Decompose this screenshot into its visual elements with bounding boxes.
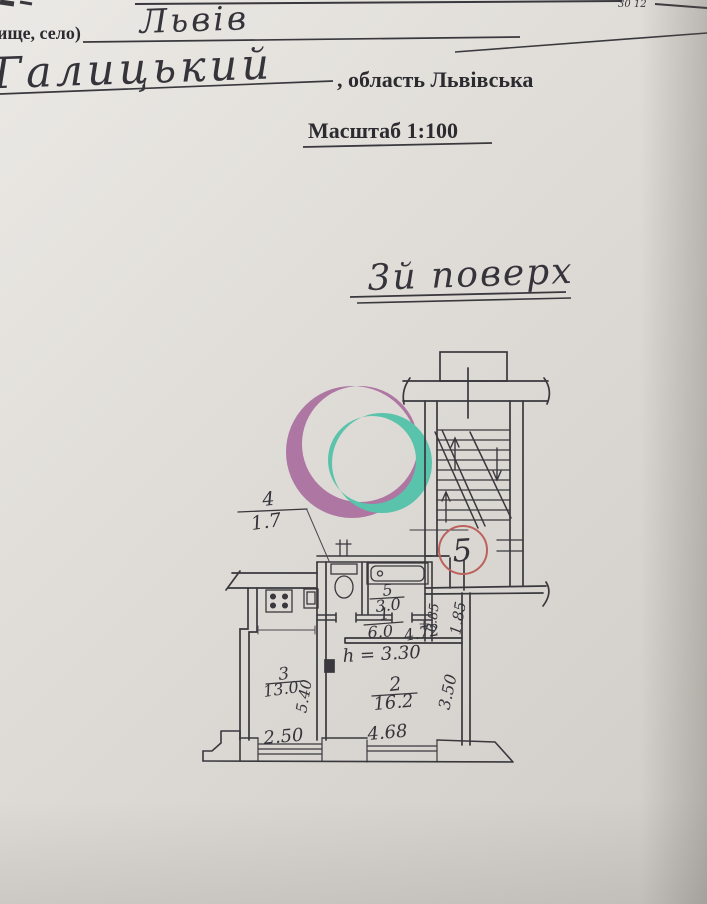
bottom-wall-outline [203, 738, 513, 762]
door-jamb-block [325, 660, 334, 672]
top-wall-band [403, 381, 548, 401]
bathtub-symbol [367, 563, 428, 584]
stove-symbol [266, 590, 292, 612]
scale-underline [303, 143, 492, 147]
bottom-wall-left-end [203, 731, 240, 761]
document-scan-canvas: 30 12 ище, село) Львів Галицький , облас… [0, 0, 707, 904]
apartment-number: 5 [451, 532, 473, 569]
dim-entry-b: 1.85 [446, 600, 470, 636]
floor-title-block: 3й поверх [350, 251, 574, 303]
left-walls [226, 562, 334, 740]
dimension-labels: 2.50 5.40 4.68 3.50 4.72 0.85 1.85 [262, 600, 470, 749]
page-bottom-shadow [0, 800, 707, 904]
top-wall-left-cut [403, 378, 410, 404]
entry-wall-band [425, 586, 546, 594]
top-left-mark [0, 2, 14, 4]
form-header: 30 12 ище, село) Львів Галицький , облас… [0, 0, 707, 147]
apartment-left-wall [240, 588, 257, 740]
top-left-dash [20, 2, 32, 4]
ceiling-height-note: h = 3.30 [342, 642, 421, 667]
scale-label: Масштаб 1:100 [308, 118, 458, 143]
dim-room3-width: 2.50 [262, 725, 305, 750]
sink-symbol [304, 589, 318, 608]
apartment-number-badge: 5 [439, 526, 487, 574]
district-handwritten-value: Галицький [0, 39, 274, 99]
dimension-lines [258, 510, 429, 634]
room3-dim-line [258, 626, 315, 634]
settlement-label: ище, село) [0, 23, 81, 44]
room4-leader-line [307, 510, 329, 561]
stairwell-right-wall [510, 401, 523, 586]
logo-teal-crescent [328, 413, 432, 513]
bath-block-top-wall [317, 556, 432, 562]
watermark-logo [286, 386, 432, 518]
dim-room2-width: 4.68 [366, 721, 409, 746]
oblast-label: , область Львівська [337, 67, 533, 92]
page-edge-shadow [640, 0, 707, 904]
vent-duct-marks [336, 540, 351, 556]
room4-number: 4 [260, 488, 275, 511]
kitchen-top-wall [226, 571, 317, 590]
settlement-handwritten-value: Львів [137, 0, 250, 41]
floor-title-underline-2 [357, 298, 571, 303]
toilet-symbol [331, 564, 357, 598]
top-wall-right-cut [544, 378, 549, 404]
chimney-shaft [440, 352, 507, 381]
room4-area: 1.7 [250, 509, 284, 535]
dim-room2-depth: 3.50 [435, 672, 461, 711]
dim-entry-a: 0.85 [424, 602, 442, 633]
room2-area: 16.2 [373, 691, 415, 715]
room1-area: 6.0 [367, 621, 394, 642]
bath-block-bottom-wall [317, 613, 432, 622]
scanned-floor-plan-page: 30 12 ище, село) Львів Галицький , облас… [0, 0, 707, 904]
